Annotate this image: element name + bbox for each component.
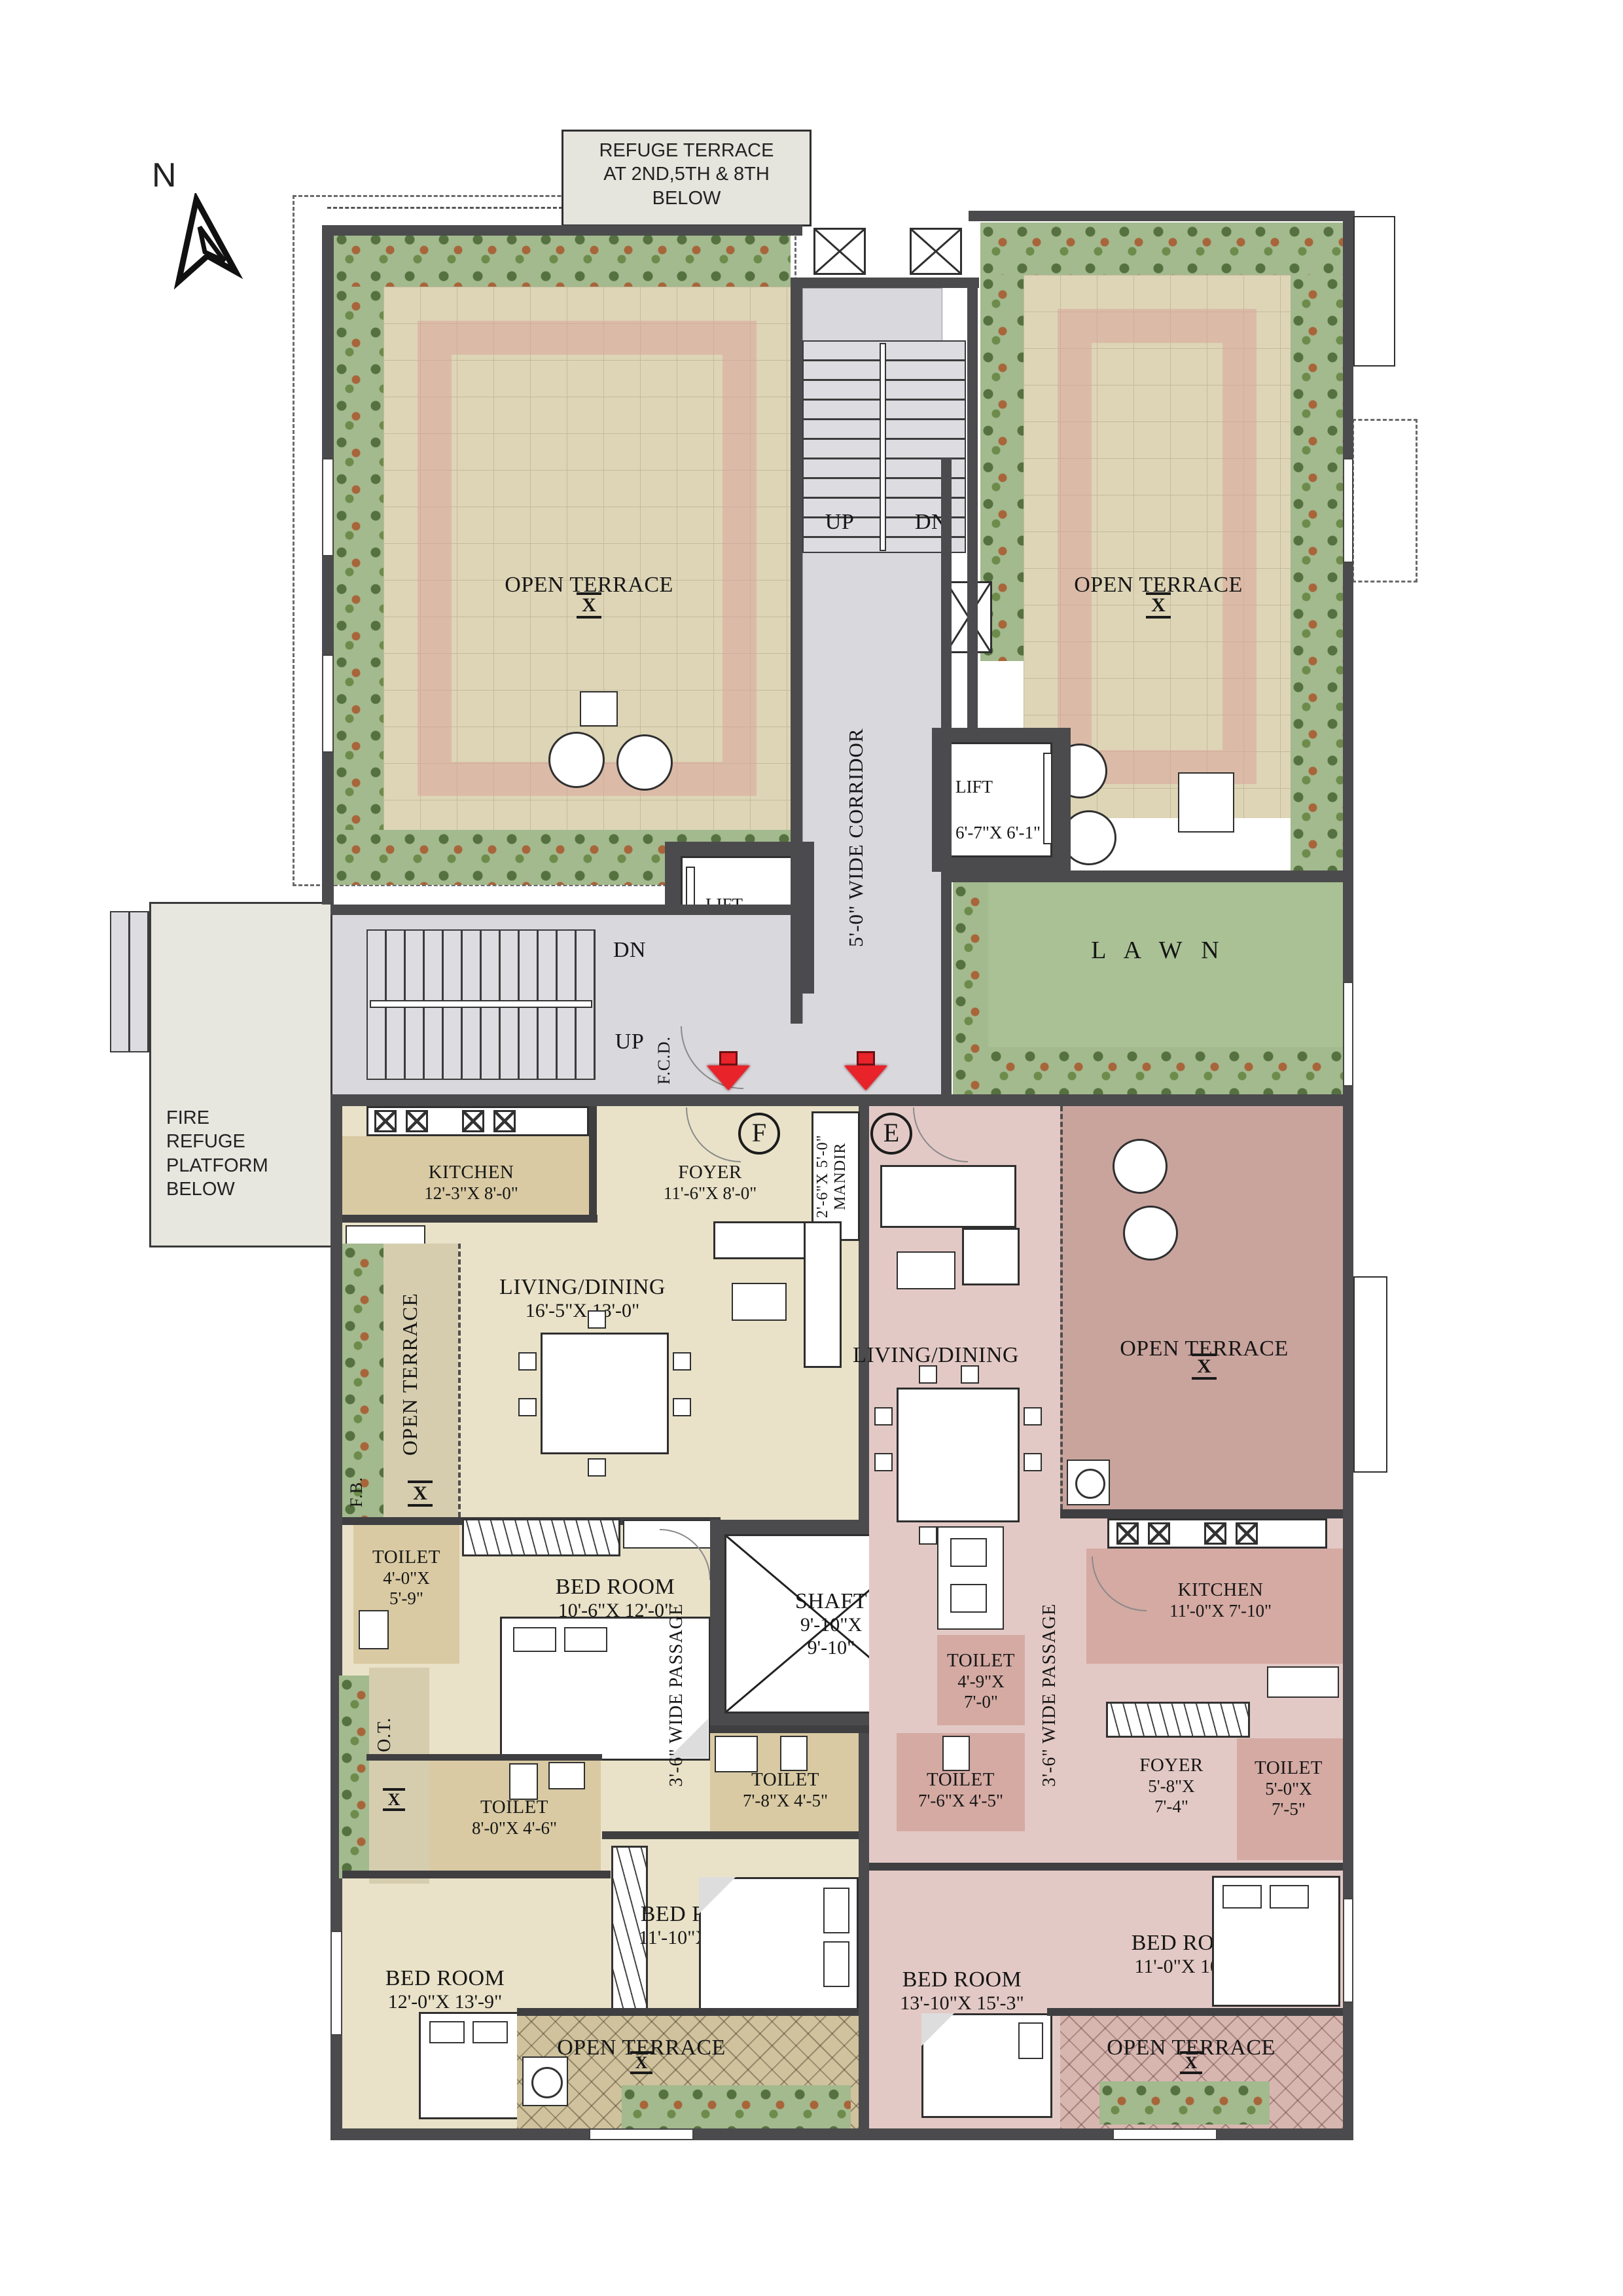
planter-terrace-f [622,2085,851,2128]
stove-burner-icon [1116,1522,1139,1545]
chair [588,1458,606,1477]
foyer-e-label: FOYER5'-8"X 7'-4" [1106,1742,1237,1829]
chair [919,1365,937,1384]
wall [791,278,979,288]
wall [589,1106,597,1223]
wall [330,1094,1353,1106]
lawn-label: L A W N [1047,936,1270,965]
balcony-projection [1353,216,1395,367]
chair [673,1398,691,1416]
terrace-chair [1123,1206,1178,1261]
entry-arrow-icon [844,1066,887,1090]
chair [588,1310,606,1329]
wall [1060,1509,1343,1518]
pillow [429,2021,465,2043]
terrace-symbol: X [401,1480,440,1507]
stair-rail [370,1000,592,1008]
entry-arrow-icon [719,1051,738,1066]
chair [1024,1453,1042,1471]
chair [518,1352,537,1371]
lawn-planter-bottom [988,1047,1343,1094]
wc [509,1763,538,1800]
pillow [823,1941,849,1987]
terrace-symbol: X [622,2051,661,2074]
kitchen-f-label: KITCHEN12'-3"X 8'-0" [380,1149,563,1216]
stove-burner-icon [1204,1522,1226,1545]
balcony-projection [1353,1276,1387,1473]
chair [874,1453,893,1471]
window [1113,2128,1217,2140]
window [1343,1898,1353,2003]
flower-bed-label: F.B. [347,1460,380,1525]
pillow [473,2021,508,2043]
washing-machine [1067,1460,1110,1505]
basin [950,1584,987,1613]
dashed-line-refuge [327,207,563,209]
terrace-symbol: X [376,1788,412,1811]
chair [874,1407,893,1426]
basin [715,1736,758,1772]
fcd-label: F.C.D. [654,1021,678,1100]
sofa [880,1165,1016,1228]
wall [602,1831,859,1839]
refuge-terrace-note: REFUGE TERRACE AT 2ND,5TH & 8TH BELOW [568,139,805,210]
living-f-label: LIVING/DINING16'-5"X 13'-0" [497,1262,668,1335]
entry-arrow-icon [707,1066,750,1090]
pillow [513,1627,556,1652]
ot-label: O.T. [374,1682,411,1787]
planter-left [334,287,383,830]
window [322,458,334,556]
wc [359,1610,389,1649]
open-terrace-e [1060,1106,1343,1509]
floor-plan-sheet: N REFUGE TERRACE AT 2ND,5TH & 8TH BELOW … [0,0,1623,2296]
duct-icon [910,228,962,275]
north-arrow-icon [167,193,252,291]
sofa [804,1221,842,1368]
basin [548,1762,585,1789]
terrace-table [580,691,618,726]
chair [1024,1407,1042,1426]
stove-burner-icon [1148,1522,1170,1545]
pillow [823,1888,849,1933]
coffee-table [732,1283,787,1321]
kitchen-e-label: KITCHEN11'-0"X 7'-10" [1139,1567,1302,1634]
pillow [564,1627,607,1652]
wardrobe [1106,1702,1250,1738]
chair [673,1352,691,1371]
washing-machine [522,2056,568,2106]
planter-top [334,230,791,287]
wall [517,2008,859,2016]
planter-terrace-e [1099,2081,1270,2125]
foyer-f-label: FOYER11'-6"X 8'-0" [628,1149,792,1216]
terrace-chair [1113,1139,1168,1194]
wardrobe [462,1518,620,1556]
wc [780,1736,808,1771]
wall [941,458,952,882]
stove-burner-icon [462,1110,484,1132]
basin [950,1538,987,1567]
planter-ot [339,1676,369,1878]
wall [967,278,978,729]
mandir-label: 2'-6"X 5'-0" MANDIR [814,1114,857,1238]
stove-burner-icon [1236,1522,1258,1545]
window [1343,458,1353,563]
toilet-c-e-label: TOILET5'-0"X 7'-5" [1234,1745,1343,1832]
toilet-a-f-label: TOILET4'-0"X 5'-9" [355,1534,458,1621]
terrace-chair [548,732,605,788]
pillow [1270,1885,1309,1909]
terrace-dashed-edge [458,1244,461,1525]
refuge-steps [110,911,149,1052]
terrace-table [1178,772,1234,833]
chair [919,1526,937,1545]
wall [322,225,802,236]
wall [941,870,1353,882]
toilet-a-e-label: TOILET4'-9"X 7'-0" [929,1638,1033,1725]
window [322,655,334,753]
planter-top-right [980,223,1343,275]
lift-door [1043,753,1052,844]
stove-burner-icon [406,1110,428,1132]
pillow [1018,2022,1043,2059]
wall [941,882,952,1106]
dashed-outline-right [1352,419,1418,583]
stair-up-label: UP [810,509,869,535]
planter-right [1291,275,1343,870]
wc [942,1736,970,1771]
bed-fold [921,2013,954,2046]
fire-refuge-note: FIRE REFUGE PLATFORM BELOW [166,1106,268,1201]
wall [342,1215,597,1223]
stair-dn-label: DN [902,509,961,535]
wall [330,905,802,915]
wall [366,1754,602,1761]
unit-e-marker: E [870,1113,912,1155]
passage-e-label: 3'-6" WIDE PASSAGE [1039,1545,1068,1846]
duct-icon [813,228,866,275]
stair-dn-label: DN [597,937,662,963]
chair [961,1365,979,1384]
chair [518,1398,537,1416]
kitchen-sink [1267,1666,1339,1698]
window [1343,982,1353,1086]
unit-f-marker: F [738,1113,780,1155]
lawn-planter-left [953,882,988,1094]
window [589,2128,694,2140]
dining-table [897,1388,1020,1522]
bed-fold [699,1877,736,1914]
pillow [1222,1885,1262,1909]
terrace-tile-band [1058,309,1257,784]
wall [1047,2008,1343,2016]
entry-arrow-icon [857,1051,875,1066]
open-terrace-f-label: OPEN TERRACE [398,1276,444,1473]
north-label: N [152,154,177,197]
dining-table [541,1333,669,1454]
passage-f-label: 3'-6" WIDE PASSAGE [666,1545,695,1846]
wall [969,211,1355,221]
sofa [962,1228,1020,1285]
lift-right-label: LIFT 6'-7"X 6'-1" 10 PAX. [955,753,1041,891]
wall [869,1863,1343,1871]
stair-rail [880,343,886,551]
wall [342,1871,611,1878]
wall [322,225,334,905]
terrace-chair [616,734,673,791]
stair-up-label: UP [597,1029,662,1054]
terrace-symbol: X [1185,1354,1224,1380]
window [330,1931,342,2036]
terrace-symbol: X [1139,592,1178,619]
stove-burner-icon [493,1110,516,1132]
coffee-table [897,1251,955,1289]
terrace-symbol: X [1171,2051,1211,2074]
terrace-symbol: X [569,592,609,619]
terrace-dashed-edge [1060,1106,1063,1509]
corridor-label: 5'-0" WIDE CORRIDOR [844,655,873,1021]
stove-burner-icon [374,1110,397,1132]
